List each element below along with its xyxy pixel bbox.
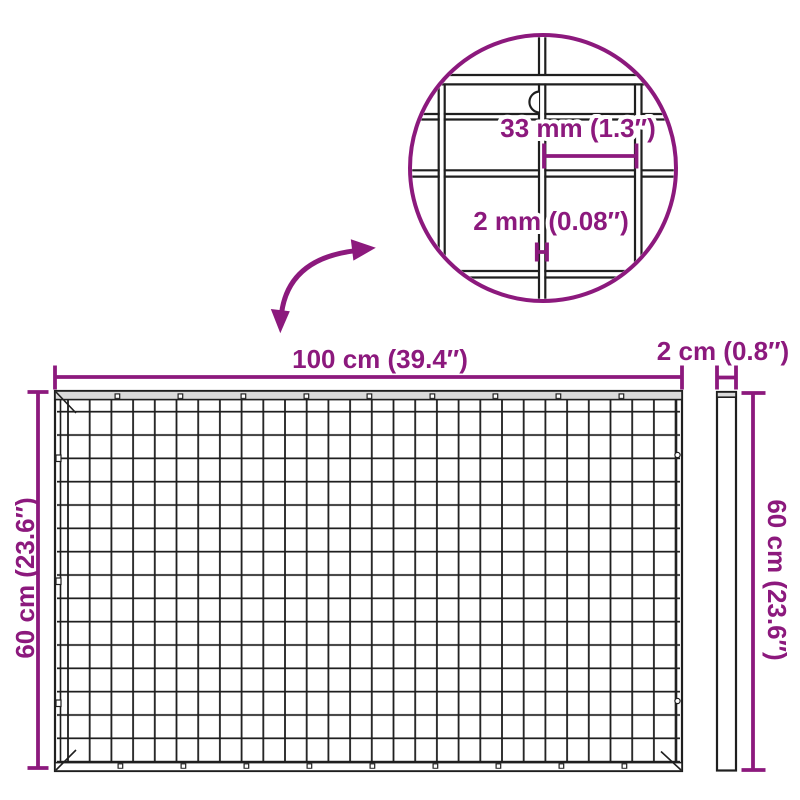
- side-panel-top-cap: [717, 392, 736, 397]
- height-right-dimension-label: 60 cm (23.6″): [762, 499, 792, 660]
- side-panel-outline: [717, 392, 736, 771]
- height-dimension-left: 60 cm (23.6″): [10, 392, 49, 768]
- height-left-dimension-label: 60 cm (23.6″): [10, 497, 40, 658]
- panel-top-hooks: [115, 393, 668, 399]
- thickness-dimension-label: 2 cm (0.8″): [657, 336, 789, 366]
- zoom-arrow-head-icon: [351, 239, 376, 260]
- width-dimension: 100 cm (39.4″): [55, 344, 682, 390]
- wire-gauge-label: 2 mm (0.08″): [473, 206, 629, 236]
- width-dimension-label: 100 cm (39.4″): [292, 344, 468, 374]
- panel-bottom-hooks: [118, 763, 671, 768]
- thickness-dimension-bracket: [717, 366, 736, 390]
- panel-front-view: [55, 391, 682, 771]
- zoom-arrow-curve: [282, 251, 355, 314]
- zoom-arrow-tail-icon: [271, 309, 290, 333]
- zoom-arrow: [271, 239, 376, 333]
- height-dimension-right: 60 cm (23.6″): [742, 393, 793, 770]
- mesh-opening-label: 33 mm (1.3″): [500, 113, 656, 143]
- dimension-diagram-canvas: 100 cm (39.4″) 60 cm (23.6″) 60 cm (23.6…: [0, 0, 800, 800]
- thickness-dimension: 2 cm (0.8″): [657, 336, 789, 390]
- detail-circle-view: 33 mm (1.3″) 2 mm (0.08″): [408, 35, 680, 301]
- panel-side-view: [717, 392, 736, 771]
- height-right-dimension-line: [742, 393, 766, 770]
- mesh-grid: [57, 400, 680, 763]
- mesh-panel-dimension-diagram: 100 cm (39.4″) 60 cm (23.6″) 60 cm (23.6…: [0, 0, 800, 800]
